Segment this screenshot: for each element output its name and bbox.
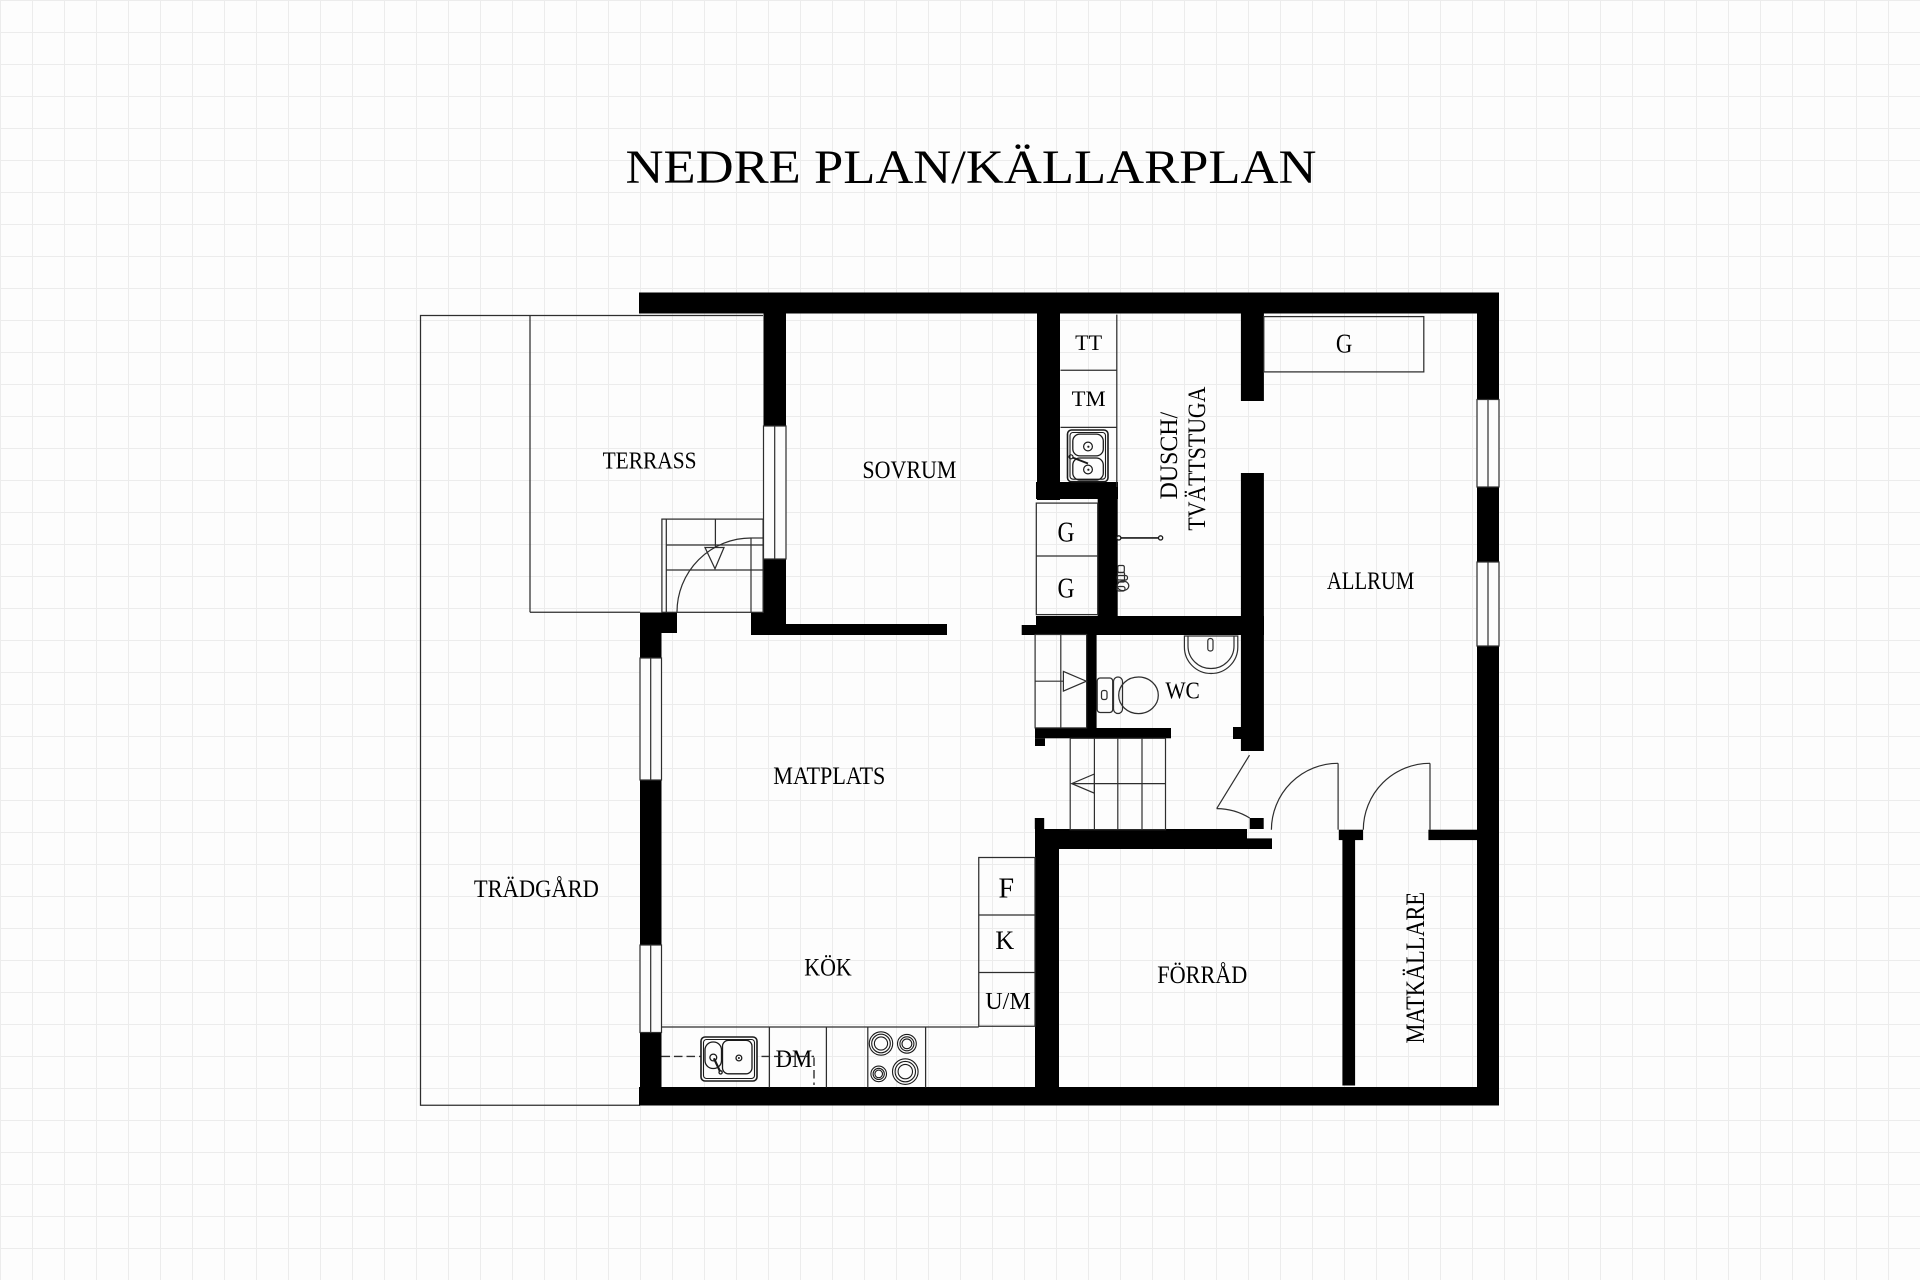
svg-text:FÖRRÅD: FÖRRÅD: [1157, 962, 1247, 989]
svg-text:SOVRUM: SOVRUM: [862, 457, 956, 484]
svg-text:ALLRUM: ALLRUM: [1327, 566, 1415, 595]
svg-text:U/M: U/M: [985, 988, 1031, 1015]
svg-text:DM: DM: [776, 1046, 813, 1073]
svg-text:DUSCH/: DUSCH/: [1156, 412, 1183, 500]
svg-text:TERRASS: TERRASS: [603, 448, 697, 474]
svg-text:F: F: [999, 874, 1015, 905]
svg-text:TRÄDGÅRD: TRÄDGÅRD: [474, 876, 599, 903]
svg-text:MATPLATS: MATPLATS: [773, 763, 885, 790]
svg-text:K: K: [995, 926, 1014, 955]
svg-text:G: G: [1336, 329, 1353, 359]
svg-text:TT: TT: [1075, 330, 1103, 355]
svg-text:G: G: [1058, 518, 1075, 549]
svg-text:TM: TM: [1072, 386, 1106, 411]
svg-text:NEDRE PLAN/KÄLLARPLAN: NEDRE PLAN/KÄLLARPLAN: [626, 141, 1317, 194]
svg-text:G: G: [1058, 574, 1075, 605]
svg-text:MATKÄLLARE: MATKÄLLARE: [1401, 892, 1430, 1043]
svg-text:WC: WC: [1165, 677, 1200, 704]
svg-text:TVÄTTSTUGA: TVÄTTSTUGA: [1184, 387, 1211, 531]
svg-text:KÖK: KÖK: [804, 955, 852, 982]
